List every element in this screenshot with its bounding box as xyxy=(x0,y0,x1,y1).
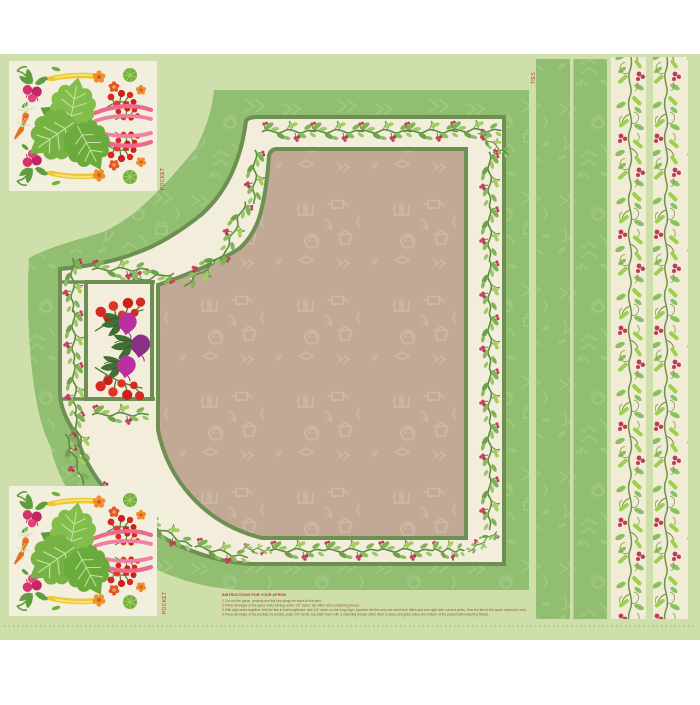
svg-text:2 Press all edges of the apron: 2 Press all edges of the apron body turn… xyxy=(222,604,360,608)
svg-text:3 With right sides together, f: 3 With right sides together, fold the ti… xyxy=(222,608,527,612)
svg-text:4 Press all edges of the pocke: 4 Press all edges of the pockets by turn… xyxy=(222,613,489,617)
svg-text:INSTRUCTIONS FOR YOUR APRON: INSTRUCTIONS FOR YOUR APRON xyxy=(222,593,286,597)
svg-text:1 Cut out the apron, pockets a: 1 Cut out the apron, pockets and the tie… xyxy=(222,599,322,603)
svg-text:POCKET: POCKET xyxy=(162,592,168,614)
svg-text:TIES: TIES xyxy=(531,72,537,84)
svg-text:POCKET: POCKET xyxy=(160,168,166,190)
